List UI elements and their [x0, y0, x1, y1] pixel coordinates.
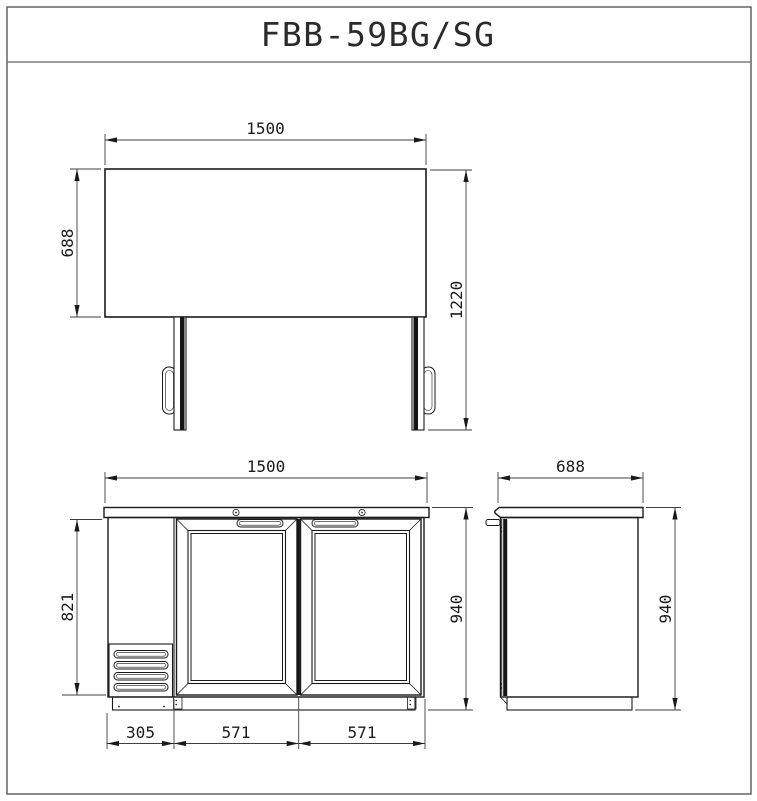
front-right-door	[301, 519, 422, 695]
plinth-rivet	[163, 706, 165, 708]
sheet-border	[7, 7, 751, 794]
plan-left-door-open	[163, 317, 187, 430]
side-plinth-bevel	[501, 697, 508, 704]
side-door-edge	[503, 519, 507, 696]
louver-slat	[114, 684, 168, 692]
louver-slat-inner	[117, 652, 166, 656]
left-door-frame	[177, 519, 298, 695]
louver-slat	[114, 662, 168, 670]
right-door-handle	[312, 520, 358, 528]
plan-left-door-edge	[180, 318, 185, 430]
foot-bracket-screw	[409, 704, 411, 706]
side-cabinet-body	[501, 518, 639, 698]
foot-bracket-screw	[175, 700, 177, 702]
dim-plan-open-depth-label: 1220	[447, 281, 466, 320]
door-corner-miter	[410, 519, 422, 531]
left-door-handle-inner	[240, 521, 281, 525]
dim-plan-width-label: 1500	[246, 119, 285, 138]
door-corner-miter	[301, 519, 313, 531]
front-cabinet-body	[108, 518, 424, 698]
foot-bracket-screw	[409, 700, 411, 702]
dim-right-door-width-label: 571	[348, 723, 377, 742]
plan-view: 1500 688 1220	[58, 119, 472, 430]
dim-front-sections: 305 571 571	[107, 697, 425, 749]
louver-slat	[114, 651, 168, 659]
side-door-latch	[486, 520, 500, 526]
dim-compressor-width-label: 305	[126, 723, 155, 742]
plinth-panel	[113, 697, 416, 710]
front-view: 1500 821 940 305 571 571	[58, 457, 473, 749]
left-door-handle	[237, 520, 283, 528]
dim-front-body-height-label: 821	[58, 593, 77, 622]
dim-side-depth-label: 688	[556, 457, 585, 476]
foot-bracket	[174, 697, 183, 709]
dim-plan-width: 1500	[105, 119, 426, 165]
right-door-frame	[301, 519, 422, 695]
dim-plan-depth-label: 688	[58, 229, 77, 258]
foot-bracket-screw	[175, 704, 177, 706]
hinge-screw	[500, 527, 502, 529]
dim-front-width: 1500	[105, 457, 427, 503]
door-corner-miter	[301, 684, 313, 696]
louver-slat-inner	[117, 674, 166, 678]
front-countertop	[104, 508, 429, 518]
dim-side-depth: 688	[498, 457, 643, 503]
louver-slat	[114, 673, 168, 681]
dim-side-height-label: 940	[656, 595, 675, 624]
plan-right-door-edge	[414, 318, 419, 430]
dim-front-height-label: 940	[447, 595, 466, 624]
plan-right-door-open	[412, 317, 435, 430]
door-corner-miter	[177, 519, 189, 531]
left-door-glass	[191, 534, 283, 681]
door-corner-miter	[177, 684, 189, 696]
right-door-glass	[315, 534, 407, 681]
front-plinth	[113, 697, 417, 710]
countertop-screw-center	[235, 512, 237, 514]
left-door-glass-frame	[188, 531, 286, 684]
dim-plan-depth: 688	[58, 169, 101, 317]
dim-front-body-height: 821	[58, 520, 106, 696]
countertop-screw-center	[361, 512, 363, 514]
right-door-glass-frame	[312, 531, 410, 684]
technical-drawing-canvas: FBB-59BG/SG 1500 68	[0, 0, 757, 801]
side-view: 688 940	[486, 457, 681, 710]
side-countertop	[495, 508, 643, 518]
dim-front-height: 940	[428, 508, 473, 711]
hinge-screw	[500, 531, 502, 533]
plinth-rivet	[118, 706, 120, 708]
door-corner-miter	[286, 519, 298, 531]
louver-slat-inner	[117, 685, 166, 689]
hinge-screw	[500, 687, 502, 689]
front-left-door	[177, 519, 298, 695]
dim-front-width-label: 1500	[247, 457, 286, 476]
louver-slat-inner	[117, 663, 166, 667]
right-door-handle-inner	[315, 521, 356, 525]
dim-left-door-width-label: 571	[222, 723, 251, 742]
plan-cabinet-outline	[105, 169, 426, 317]
drawing-sheet: FBB-59BG/SG 1500 68	[0, 0, 757, 801]
dim-side-height: 940	[635, 508, 681, 711]
door-corner-miter	[410, 684, 422, 696]
hinge-screw	[500, 683, 502, 685]
side-plinth	[507, 697, 632, 710]
model-title: FBB-59BG/SG	[260, 15, 495, 54]
front-louver-vent	[109, 644, 173, 697]
door-corner-miter	[286, 684, 298, 696]
